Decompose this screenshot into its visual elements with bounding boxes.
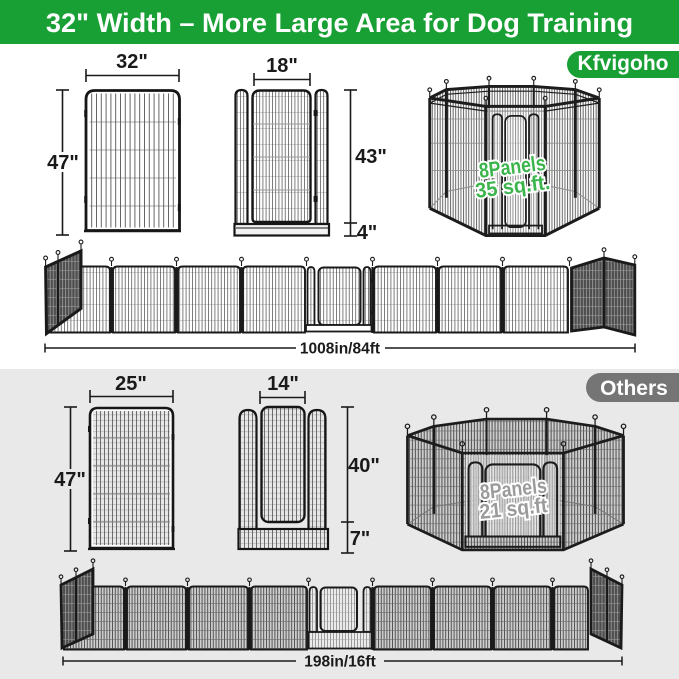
svg-text:7": 7" (350, 528, 371, 550)
svg-text:25": 25" (115, 373, 147, 395)
svg-text:32": 32" (116, 51, 148, 73)
svg-text:32" Width – More Large Area fo: 32" Width – More Large Area for Dog Trai… (46, 7, 633, 38)
svg-text:Kfvigoho: Kfvigoho (578, 52, 669, 75)
svg-text:14": 14" (267, 373, 299, 395)
svg-text:4": 4" (357, 222, 378, 244)
svg-text:1008in/84ft: 1008in/84ft (300, 341, 380, 358)
svg-text:40": 40" (348, 455, 380, 477)
svg-text:18": 18" (266, 55, 298, 77)
svg-text:47": 47" (54, 469, 86, 491)
svg-text:43": 43" (355, 146, 387, 168)
svg-text:47": 47" (47, 152, 79, 174)
svg-text:198in/16ft: 198in/16ft (304, 654, 376, 671)
svg-text:Others: Others (600, 377, 668, 400)
